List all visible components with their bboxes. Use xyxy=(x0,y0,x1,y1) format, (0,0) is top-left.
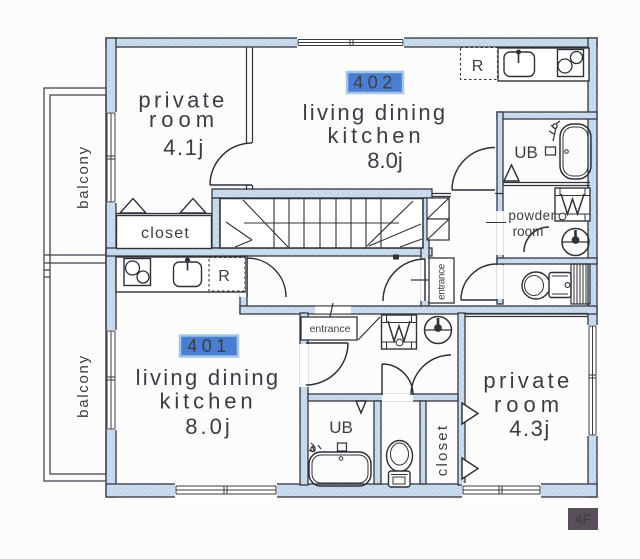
svg-text:living dining: living dining xyxy=(303,100,448,125)
svg-text:entrance: entrance xyxy=(437,263,448,300)
svg-text:UB: UB xyxy=(514,143,538,162)
svg-text:closet: closet xyxy=(434,424,451,476)
svg-text:4F: 4F xyxy=(575,511,591,527)
svg-text:402: 402 xyxy=(353,73,397,93)
svg-text:kitchen: kitchen xyxy=(327,123,424,148)
svg-text:4.3j: 4.3j xyxy=(509,416,550,441)
svg-text:8.0j: 8.0j xyxy=(367,148,402,173)
svg-text:UB: UB xyxy=(329,418,353,437)
svg-text:R: R xyxy=(472,58,484,75)
svg-text:8.0j: 8.0j xyxy=(185,414,232,439)
svg-text:closet: closet xyxy=(141,225,190,242)
svg-text:room: room xyxy=(149,107,219,132)
svg-text:powder: powder xyxy=(508,208,555,223)
svg-text:room: room xyxy=(494,392,564,417)
svg-text:kitchen: kitchen xyxy=(159,389,256,414)
svg-text:401: 401 xyxy=(187,336,231,356)
svg-text:R: R xyxy=(218,268,230,285)
svg-text:balcony: balcony xyxy=(75,145,92,209)
svg-text:balcony: balcony xyxy=(75,354,92,418)
svg-text:room: room xyxy=(513,224,544,239)
svg-text:entrance: entrance xyxy=(310,323,351,335)
svg-text:living dining: living dining xyxy=(136,365,281,390)
svg-text:4.1j: 4.1j xyxy=(163,135,204,160)
svg-text:private: private xyxy=(483,368,572,393)
